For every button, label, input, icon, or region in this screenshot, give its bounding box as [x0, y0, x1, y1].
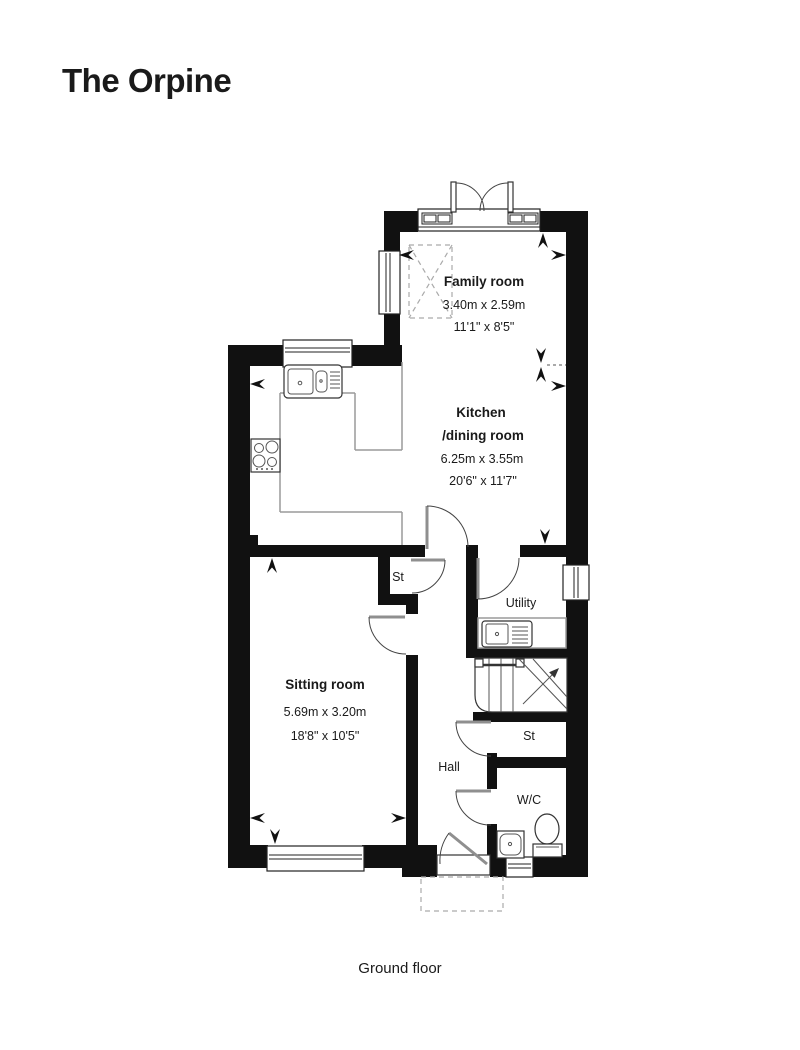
- utility-door: [478, 558, 519, 599]
- wc-label: W/C: [517, 793, 541, 807]
- front-door: [437, 833, 490, 875]
- wc-fixtures: [497, 814, 562, 858]
- sitting-room-label: Sitting room: [285, 677, 365, 692]
- kitchen-door: [427, 506, 468, 549]
- porch-canopy-outline: [421, 877, 503, 911]
- family-room-window: [379, 251, 400, 314]
- store-lower-label: St: [523, 729, 535, 743]
- floorplan-page: The Orpine: [0, 0, 800, 1050]
- walls: [228, 211, 588, 877]
- store-upper-door: [411, 560, 445, 593]
- basin-icon: [497, 831, 524, 858]
- french-doors: [418, 182, 540, 231]
- kitchen-fixtures: [251, 362, 402, 545]
- hall-label: Hall: [438, 760, 460, 774]
- utility-window: [563, 565, 589, 600]
- kitchen-metric: 6.25m x 3.55m: [441, 452, 524, 466]
- sitting-room-imperial: 18'8" x 10'5": [291, 729, 360, 743]
- stairs: [475, 658, 567, 712]
- kitchen-window: [283, 340, 352, 367]
- store-upper-label: St: [392, 570, 404, 584]
- kitchen-imperial: 20'6" x 11'7": [449, 474, 517, 488]
- page-title: The Orpine: [62, 62, 231, 99]
- sitting-room-door: [369, 617, 406, 654]
- kitchen-sink-icon: [284, 365, 342, 398]
- floor-caption: Ground floor: [358, 960, 441, 977]
- family-room-label: Family room: [444, 274, 524, 289]
- hob-icon: [251, 439, 280, 472]
- family-room-imperial: 11'1" x 8'5": [454, 320, 515, 334]
- sitting-room-metric: 5.69m x 3.20m: [284, 705, 367, 719]
- toilet-icon: [533, 814, 562, 857]
- store-lower-door: [456, 722, 491, 756]
- windows: [267, 251, 589, 877]
- family-room-metric: 3.40m x 2.59m: [443, 298, 526, 312]
- floorplan-canvas: The Orpine: [0, 0, 800, 1050]
- utility-label: Utility: [506, 596, 537, 610]
- wc-window: [506, 857, 533, 877]
- utility-fixtures: [478, 618, 566, 648]
- dashed-overlays: [409, 245, 503, 911]
- kitchen-label: Kitchen: [456, 405, 506, 420]
- wc-door: [456, 791, 491, 825]
- sitting-room-window: [267, 846, 364, 871]
- kitchen-label-2: /dining room: [442, 428, 524, 443]
- utility-sink-icon: [482, 621, 532, 647]
